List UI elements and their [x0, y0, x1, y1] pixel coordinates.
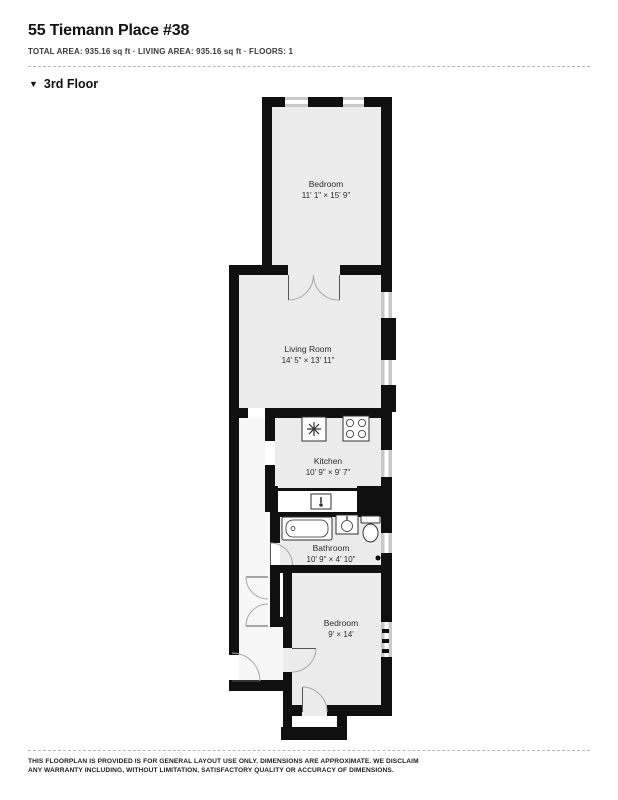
plan-dot — [376, 556, 381, 561]
room-dims: 9' × 14' — [328, 630, 354, 639]
room-label: Living Room — [284, 344, 331, 354]
window — [381, 533, 392, 553]
room-label: Kitchen — [314, 456, 343, 466]
room-dims: 11' 1" × 15' 9" — [302, 191, 351, 200]
window — [381, 450, 392, 477]
floorplan-svg: Bedroom 11' 1" × 15' 9" Living Room 14' … — [0, 0, 618, 800]
window — [381, 360, 392, 385]
window — [381, 622, 392, 657]
floorplan-page: 55 Tiemann Place #38 TOTAL AREA: 935.16 … — [0, 0, 618, 800]
room-dims: 10' 9" × 9' 7" — [306, 468, 351, 477]
disclaimer: THIS FLOORPLAN IS PROVIDED IS FOR GENERA… — [28, 757, 428, 775]
window — [285, 97, 308, 107]
divider-bottom — [28, 750, 590, 751]
room-label: Bathroom — [313, 543, 350, 553]
toilet-icon — [361, 516, 380, 542]
room-dims: 10' 9" × 4' 10" — [307, 555, 356, 564]
living-room-floor — [239, 275, 381, 408]
counter-sink-icon — [311, 494, 331, 509]
stove-icon — [343, 416, 369, 441]
bathroom-sink-icon — [336, 515, 358, 534]
window — [343, 97, 364, 107]
room-dims: 14' 5" × 13' 11" — [282, 356, 335, 365]
room-label: Bedroom — [309, 179, 344, 189]
bathtub-icon — [282, 517, 332, 540]
window — [381, 292, 392, 318]
kitchen-sink-icon — [302, 417, 326, 441]
bedroom2-floor — [292, 573, 381, 705]
room-label: Bedroom — [324, 618, 359, 628]
